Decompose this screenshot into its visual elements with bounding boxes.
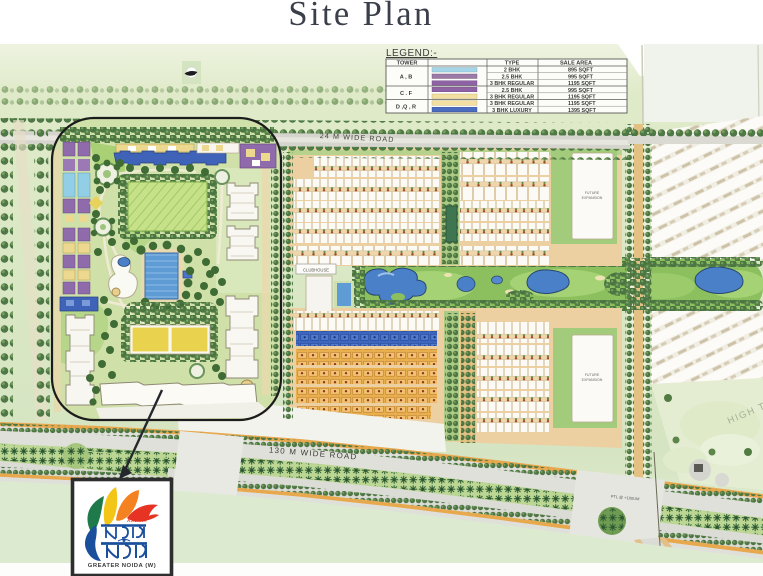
svg-text:A , B: A , B — [400, 75, 413, 81]
svg-text:TYPE: TYPE — [505, 61, 520, 67]
svg-text:1195 SQFT: 1195 SQFT — [568, 95, 596, 101]
svg-text:895 SQFT: 895 SQFT — [568, 68, 594, 74]
svg-text:1195 SQFT: 1195 SQFT — [568, 101, 596, 107]
svg-text:EXPANSION: EXPANSION — [582, 196, 603, 200]
svg-text:FUTURE: FUTURE — [585, 191, 600, 195]
svg-text:995 SQFT: 995 SQFT — [568, 88, 594, 94]
svg-text:2.5 BHK: 2.5 BHK — [502, 74, 523, 80]
svg-text:SALE AREA: SALE AREA — [560, 61, 592, 67]
svg-text:EXPANSION: EXPANSION — [582, 378, 603, 382]
svg-text:TOWER: TOWER — [397, 61, 418, 67]
svg-text:2 BHK: 2 BHK — [504, 68, 520, 74]
svg-text:3 BHK REGULAR: 3 BHK REGULAR — [490, 95, 534, 101]
svg-text:1395 SQFT: 1395 SQFT — [568, 108, 597, 114]
svg-text:D ,Q , R: D ,Q , R — [396, 105, 416, 111]
svg-text:2.5 BHK: 2.5 BHK — [502, 88, 523, 94]
svg-text:Site Plan: Site Plan — [288, 0, 433, 33]
svg-text:CLUBHOUSE: CLUBHOUSE — [303, 268, 329, 273]
svg-text:C . F: C . F — [400, 91, 413, 97]
svg-text:LEGEND:-: LEGEND:- — [386, 48, 437, 59]
svg-text:FUTURE: FUTURE — [585, 373, 600, 377]
svg-text:1195 SQFT: 1195 SQFT — [568, 81, 596, 87]
svg-text:3 BHK REGULAR: 3 BHK REGULAR — [490, 81, 534, 87]
svg-text:GREATER NOIDA (W): GREATER NOIDA (W) — [88, 563, 156, 569]
svg-text:995 SQFT: 995 SQFT — [568, 74, 594, 80]
svg-text:3 BHK REGULAR: 3 BHK REGULAR — [490, 101, 534, 107]
svg-text:AJNARA: AJNARA — [127, 518, 147, 523]
svg-text:3 BHK LUXURY: 3 BHK LUXURY — [492, 108, 532, 114]
